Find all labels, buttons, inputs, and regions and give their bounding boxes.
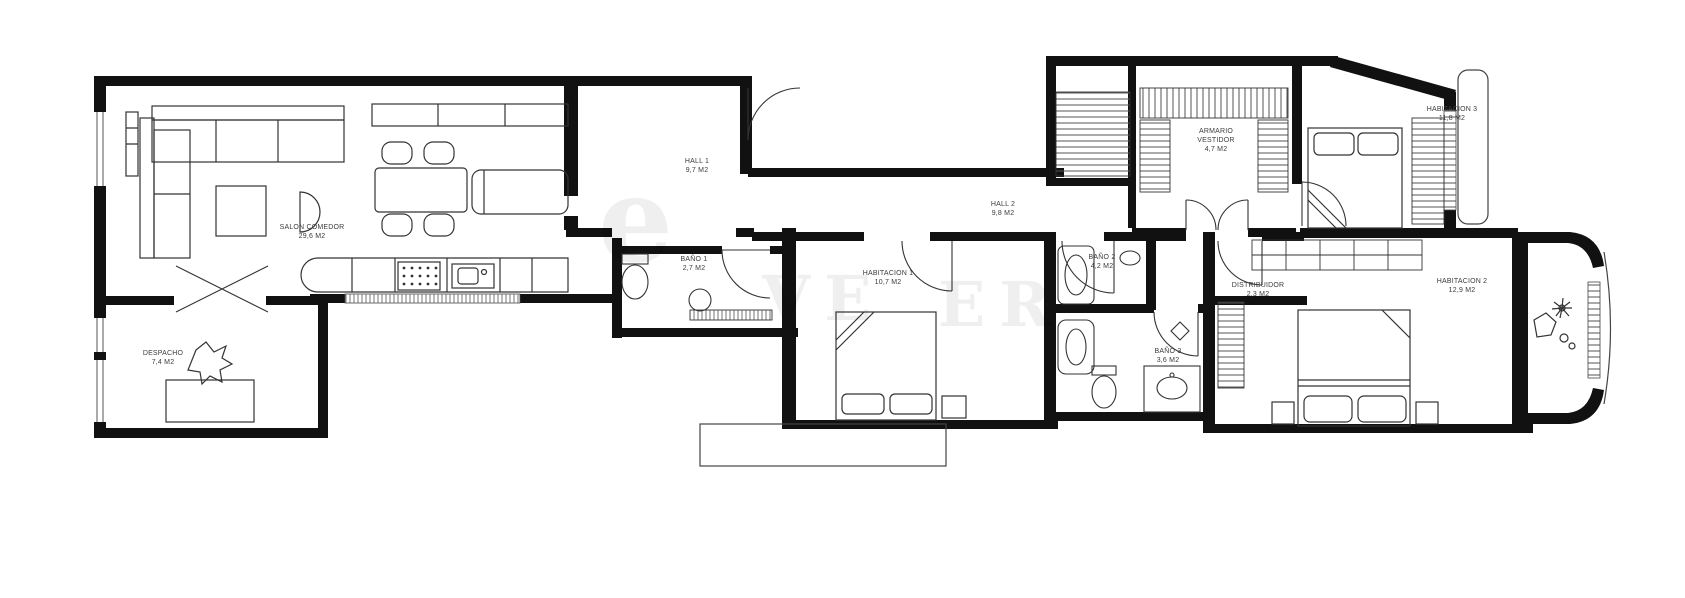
coffee-table-icon xyxy=(216,186,266,236)
kitchen-island-icon xyxy=(472,170,568,214)
stool-icon xyxy=(1534,313,1556,337)
room-label-habitacion-1: HABITACION 1 10,7 M2 xyxy=(863,270,914,288)
room-label-bano-3: BAÑO 3 3,6 M2 xyxy=(1155,348,1182,366)
wardrobe-icon xyxy=(1218,302,1244,388)
window-icon xyxy=(1444,110,1456,210)
wardrobe-icon xyxy=(1140,88,1288,118)
room-label-despacho: DESPACHO 7,4 M2 xyxy=(143,350,183,368)
window-icon xyxy=(94,112,106,186)
dining-chair-icon xyxy=(382,214,412,236)
pillow-icon xyxy=(1304,396,1352,422)
window-icon xyxy=(94,360,106,422)
drain-icon xyxy=(1171,322,1189,340)
washbasin-icon xyxy=(1144,366,1200,412)
plant-icon xyxy=(1552,298,1572,318)
floor-plan-drawing xyxy=(0,0,1685,598)
door-arc-icon xyxy=(1218,241,1262,285)
entrance-door-icon xyxy=(748,88,800,140)
bed-icon xyxy=(836,312,966,420)
toilet-icon xyxy=(1092,366,1116,408)
kitchen-counter-icon xyxy=(301,258,568,292)
wardrobe-icon xyxy=(1056,92,1130,176)
pillow-icon xyxy=(1358,396,1406,422)
wardrobe-icon xyxy=(1252,240,1422,270)
bed-icon xyxy=(1272,310,1438,426)
floor-plan-canvas: e VE ER xyxy=(0,0,1685,598)
toilet-icon xyxy=(622,254,648,299)
double-door-icon xyxy=(1186,200,1248,230)
pillow-icon xyxy=(1314,133,1354,155)
salon-furniture xyxy=(126,104,568,258)
terrace-outline xyxy=(700,424,946,466)
sideboard-icon xyxy=(372,104,568,126)
pillow-icon xyxy=(1358,133,1398,155)
bidet-icon xyxy=(689,289,711,311)
room-label-salon-comedor: SALON COMEDOR 29,6 M2 xyxy=(280,224,345,242)
room-label-hall-2: HALL 2 9,8 M2 xyxy=(991,201,1015,219)
bed-icon xyxy=(1308,128,1402,228)
dining-table-icon xyxy=(375,142,467,236)
room-label-armario-vestidor: ARMARIO VESTIDOR 4,7 M2 xyxy=(1184,128,1248,154)
tv-unit-icon xyxy=(126,112,138,176)
room-label-habitacion-2: HABITACION 2 12,9 M2 xyxy=(1437,278,1488,296)
nightstand-icon xyxy=(1416,402,1438,424)
balcony-outline xyxy=(1458,70,1488,224)
window-icon xyxy=(94,318,106,352)
nightstand-icon xyxy=(942,396,966,418)
radiator-icon xyxy=(690,310,772,320)
window-icon xyxy=(1588,282,1600,378)
room-label-distribuidor: DISTRIBUIDOR 2,3 M2 xyxy=(1232,282,1285,300)
sink-icon xyxy=(452,264,494,288)
pillow-icon xyxy=(890,394,932,414)
decor-icon xyxy=(1560,334,1568,342)
dining-chair-icon xyxy=(424,142,454,164)
desk-icon xyxy=(166,380,254,422)
door-arc-icon xyxy=(722,250,770,298)
door-x-icon xyxy=(176,266,268,312)
balcony-outline xyxy=(1604,252,1611,404)
dining-chair-icon xyxy=(382,142,412,164)
wardrobe-icon xyxy=(1140,120,1170,192)
wardrobe-icon xyxy=(1258,120,1288,192)
room-label-bano-2: BAÑO 2 4,2 M2 xyxy=(1089,254,1116,272)
shower-icon xyxy=(1058,320,1094,374)
room-label-habitacion-3: HABITACION 3 11,8 M2 xyxy=(1427,106,1478,124)
room-label-bano-1: BAÑO 1 2,7 M2 xyxy=(681,256,708,274)
hob-icon xyxy=(398,262,440,290)
room-label-hall-1: HALL 1 9,7 M2 xyxy=(685,158,709,176)
window-icon xyxy=(345,294,520,303)
pillow-icon xyxy=(842,394,884,414)
nightstand-icon xyxy=(1272,402,1294,424)
desk-chair-icon xyxy=(188,342,232,384)
dining-chair-icon xyxy=(424,214,454,236)
decor-icon xyxy=(1569,343,1575,349)
walls xyxy=(94,56,1604,438)
wardrobe-icon xyxy=(1412,118,1444,224)
washbasin-icon xyxy=(1120,251,1140,265)
